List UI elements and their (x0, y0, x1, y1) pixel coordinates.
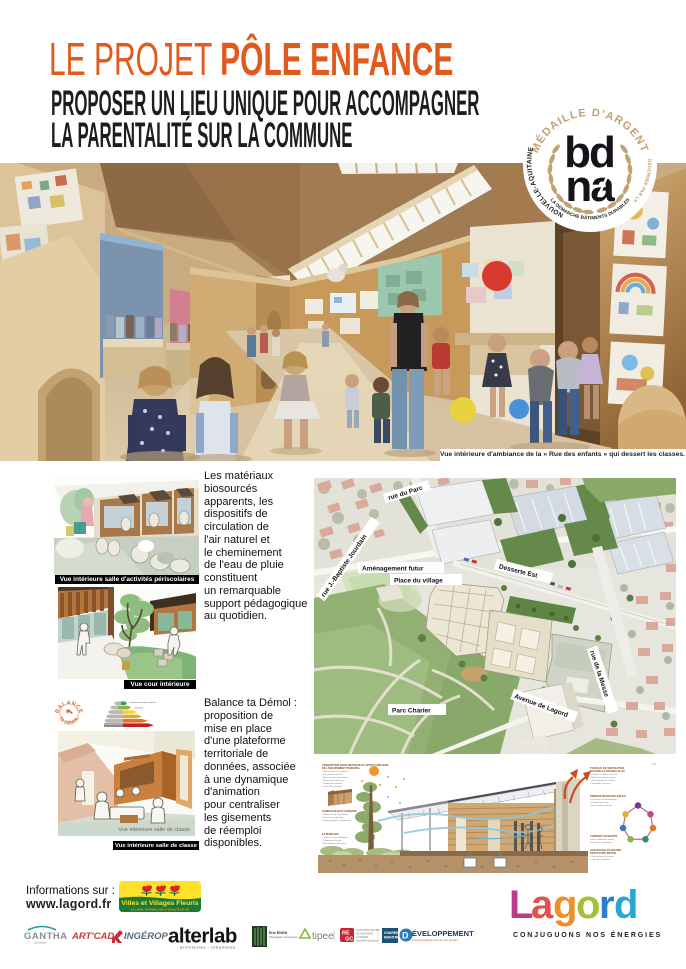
svg-text:tipee: tipee (312, 931, 334, 942)
svg-text:• Toiture claire et en toiture: • Toiture claire et en toiture (322, 770, 349, 773)
svg-text:L'accompagnement de nos projet: L'accompagnement de nos projets (412, 938, 458, 942)
svg-text:Paysagiste Concepteur: Paysagiste Concepteur (269, 935, 298, 939)
svg-text:NATURELLE DOUBLE FLUX: NATURELLE DOUBLE FLUX (590, 769, 625, 773)
svg-text:Inertie, débord de toiture,: Inertie, débord de toiture, (590, 838, 615, 841)
svg-text:ÉVELOPPEMENT: ÉVELOPPEMENT (412, 929, 474, 938)
svg-text:Place du village: Place du village (394, 578, 443, 585)
svg-text:• Protections solaires: • Protections solaires (322, 782, 343, 785)
svg-text:architectes - urbanistes: architectes - urbanistes (180, 945, 236, 950)
svg-text:• Géothermie sur sondes: • Géothermie sur sondes (590, 855, 615, 858)
svg-text:• Ventilation nocturne: • Ventilation nocturne (590, 782, 611, 785)
svg-text:• Façade bois massif: • Façade bois massif (322, 774, 343, 776)
svg-text:MARITIME: MARITIME (384, 936, 402, 940)
svg-text:• Plancher technique: • Plancher technique (322, 785, 343, 788)
svg-text:COMPLEXE BAS CARBONE: COMPLEXE BAS CARBONE (322, 809, 357, 813)
svg-text:GC: GC (345, 937, 353, 943)
svg-text:g: g (553, 883, 577, 927)
svg-text:1/4: 1/4 (652, 762, 657, 766)
svg-text:na: na (565, 162, 615, 211)
svg-text:Vue intérieure salle de classe: Vue intérieure salle de classe (118, 827, 190, 833)
svg-text:CUISINES: CUISINES (356, 935, 369, 939)
svg-text:• Gestion eau pluviale: • Gestion eau pluviale (322, 816, 344, 819)
svg-text:• Plantations locales: • Plantations locales (322, 839, 343, 842)
svg-text:• Rafraîchissement naturel: • Rafraîchissement naturel (590, 776, 616, 779)
svg-text:BALANCE: BALANCE (55, 700, 83, 714)
svg-text:Nouvelle-Aquitaine: Nouvelle-Aquitaine (356, 939, 378, 943)
svg-text:INGÉROP: INGÉROP (124, 931, 168, 942)
svg-text:• Récupération des eaux: • Récupération des eaux (322, 842, 347, 845)
svg-text:• Récupération de calories: • Récupération de calories (590, 779, 616, 782)
svg-text:Aménagement futur: Aménagement futur (362, 566, 424, 573)
svg-text:o: o (576, 883, 600, 927)
svg-text:• Menuiseries bois-alu: • Menuiseries bois-alu (322, 779, 344, 782)
svg-text:Coupe technique et bioclimatiq: Coupe technique et bioclimatique de l'éq… (464, 867, 553, 872)
svg-text:• Noues plantées et infiltrati: • Noues plantées et infiltration (322, 819, 352, 822)
svg-text:D: D (402, 931, 409, 941)
svg-text:• Chaleur et débits air libéré: • Chaleur et débits air libérés (590, 773, 619, 776)
svg-text:DE GRANDES: DE GRANDES (356, 932, 373, 936)
svg-text:• Plancher chauffant: • Plancher chauffant (590, 858, 610, 861)
svg-text:CONSTRUCTEURS: CONSTRUCTEURS (356, 928, 380, 932)
svg-text:Villes et Villages Fleuris: Villes et Villages Fleuris (121, 900, 198, 907)
svg-text:• Eau chaude sanitaire: • Eau chaude sanitaire (590, 804, 613, 807)
svg-text:GANTHA: GANTHA (24, 931, 68, 942)
svg-text:• Béton de site et granulats: • Béton de site et granulats (322, 813, 349, 816)
svg-text:• Murs ossature bois isolés: • Murs ossature bois isolés (322, 776, 349, 779)
svg-text:Parc Charier: Parc Charier (392, 708, 431, 715)
svg-text:r: r (599, 883, 615, 927)
svg-text:• Jardin et cour végétalisés: • Jardin et cour végétalisés (322, 836, 349, 839)
svg-text:acoustique: acoustique (34, 941, 47, 945)
svg-text:• Production solaire: • Production solaire (590, 801, 610, 804)
svg-text:Label BBCA: Label BBCA (134, 707, 144, 710)
svg-text:L: L (509, 883, 533, 927)
svg-text:d: d (614, 883, 638, 927)
svg-text:• Panneaux photovoltaïques: • Panneaux photovoltaïques (590, 798, 618, 801)
svg-text:brise-soleil, végétation: brise-soleil, végétation (590, 841, 613, 844)
svg-text:ART'CAD: ART'CAD (71, 931, 114, 942)
svg-text:a: a (531, 883, 554, 927)
svg-text:Consommation énergétique optim: Consommation énergétique optimisée (129, 701, 156, 704)
